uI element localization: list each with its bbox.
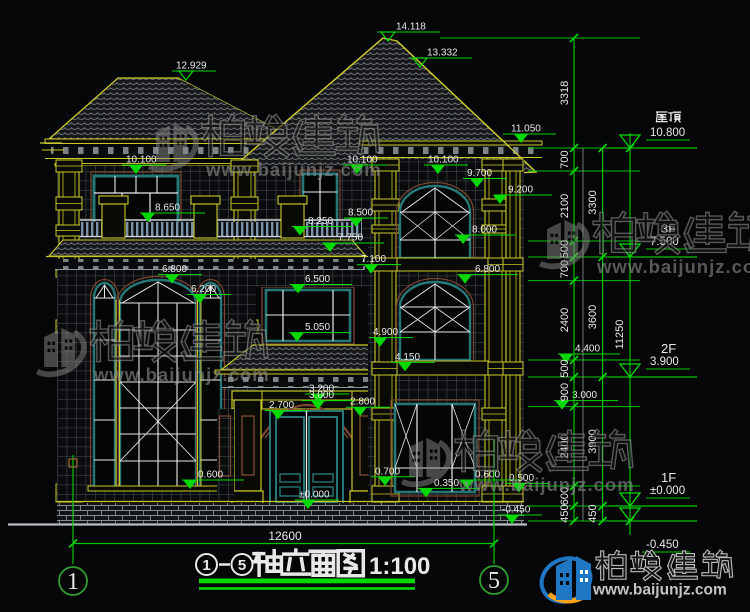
svg-text:2.700: 2.700 [269,400,294,411]
svg-text:8.500: 8.500 [348,208,373,219]
svg-text:8.250: 8.250 [308,216,333,227]
svg-text:13.332: 13.332 [427,48,458,59]
svg-text:450: 450 [559,504,571,522]
svg-text:0.600: 0.600 [198,470,223,481]
svg-text:4.400: 4.400 [575,344,600,355]
svg-text:12600: 12600 [268,529,302,543]
svg-text:1F: 1F [661,470,676,485]
svg-text:3.900: 3.900 [650,356,679,368]
svg-text:-0.450: -0.450 [502,505,531,516]
svg-text:±0.000: ±0.000 [299,490,330,501]
svg-text:±0.000: ±0.000 [650,485,685,497]
svg-text:10.100: 10.100 [428,155,459,166]
svg-text:1: 1 [202,557,210,574]
svg-text:4.900: 4.900 [373,327,398,338]
svg-text:5: 5 [238,557,246,574]
svg-text:11250: 11250 [614,320,626,350]
svg-text:2100: 2100 [559,194,571,218]
svg-text:3300: 3300 [587,190,599,214]
svg-text:www.baijunjz.com: www.baijunjz.com [93,364,270,385]
svg-text:3600: 3600 [587,305,599,329]
svg-text:4.150: 4.150 [395,352,420,363]
svg-text:7.750: 7.750 [338,233,363,244]
svg-text:1: 1 [67,569,79,595]
svg-text:900: 900 [559,383,571,401]
svg-text:6.800: 6.800 [475,264,500,275]
svg-text:10.800: 10.800 [650,127,685,139]
svg-text:3.000: 3.000 [572,390,597,401]
svg-text:www.baijunjz.com: www.baijunjz.com [205,159,382,180]
svg-text:2.800: 2.800 [350,397,375,408]
svg-text:5.050: 5.050 [305,322,330,333]
svg-text:6.800: 6.800 [162,264,187,275]
svg-text:5: 5 [488,568,500,594]
svg-text:8.000: 8.000 [472,225,497,236]
svg-text:www.baijunjz.com: www.baijunjz.com [458,474,635,495]
svg-text:700: 700 [559,150,571,168]
svg-text:10.100: 10.100 [126,155,157,166]
svg-text:2400: 2400 [559,308,571,332]
svg-text:0.700: 0.700 [375,466,400,477]
svg-text:-0.450: -0.450 [646,539,679,551]
svg-text:3.000: 3.000 [309,390,334,401]
svg-text:www.baijunjz.com: www.baijunjz.com [592,582,727,599]
svg-text:11.050: 11.050 [511,124,541,135]
svg-text:8.650: 8.650 [155,203,180,214]
svg-text:12.929: 12.929 [176,61,207,72]
svg-text:2F: 2F [661,341,676,356]
svg-text:7.100: 7.100 [361,254,386,265]
svg-text:500: 500 [559,359,571,377]
svg-text:3318: 3318 [559,81,571,105]
svg-text:9.700: 9.700 [467,168,492,179]
svg-text:www.baijunjz.com: www.baijunjz.com [596,256,750,277]
svg-text:6.200: 6.200 [191,284,216,295]
svg-text:14.118: 14.118 [396,22,426,33]
svg-text:6.500: 6.500 [305,274,330,285]
svg-text:450: 450 [587,504,599,522]
svg-text:9.200: 9.200 [508,185,533,196]
svg-text:1:100: 1:100 [369,553,430,580]
